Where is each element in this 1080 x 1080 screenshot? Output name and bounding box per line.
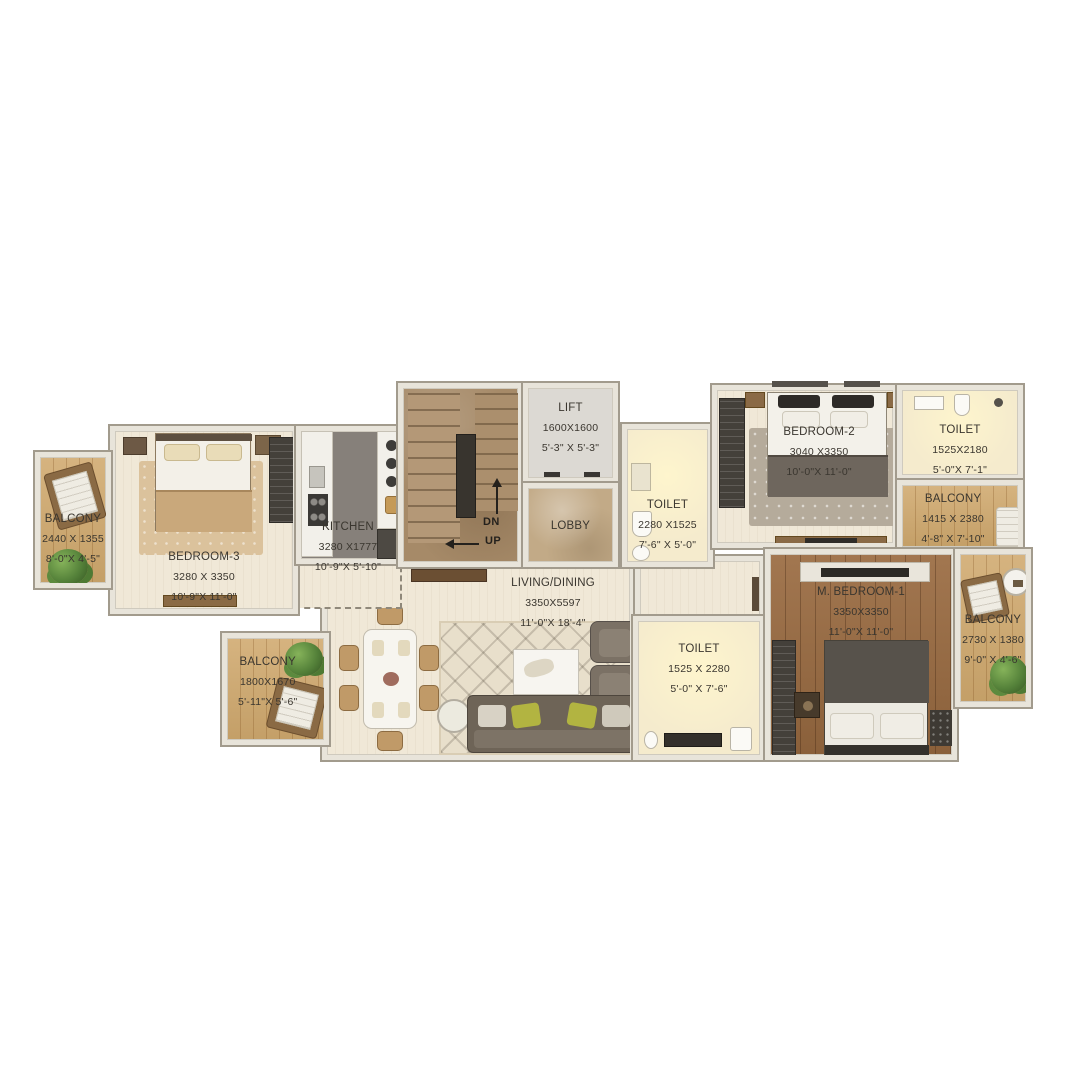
washbasin — [644, 731, 658, 749]
room-name: M. BEDROOM-1 — [817, 582, 905, 603]
stair-railing — [456, 434, 476, 518]
stair-flight-left — [408, 393, 460, 543]
room-dim-mm: 2730 X 1380 — [962, 631, 1024, 650]
bed-pillow — [206, 444, 242, 461]
stairs-dn-label: DN — [483, 516, 500, 528]
bed-headboard — [825, 745, 929, 760]
room-dim-ft: 8'-0"X 4'-5" — [42, 550, 104, 569]
room-label: LIFT 1600X1600 5'-3" X 5'-3" — [542, 398, 599, 458]
sofa-pillow-green — [511, 702, 542, 729]
armchair — [590, 621, 635, 663]
dining-centerpiece — [383, 672, 399, 686]
bed-pillow — [830, 713, 874, 739]
room-balcony-right-upper: BALCONY 1415 X 2380 4'-8" X 7'-10" — [897, 480, 1023, 552]
room-label: TOILET 2280 X1525 7'-6" X 5'-0" — [638, 495, 697, 555]
dining-table — [363, 629, 417, 729]
room-balcony-left: BALCONY 2440 X 1355 8'-0"X 4'-5" — [35, 452, 111, 588]
room-name: KITCHEN — [315, 517, 381, 538]
room-toilet-common: TOILET 2280 X1525 7'-6" X 5'-0" — [622, 424, 713, 567]
room-dim-mm: 1525X2180 — [932, 441, 988, 460]
room-label: TOILET 1525X2180 5'-0"X 7'-1" — [932, 420, 988, 480]
room-label: KITCHEN 3280 X1777 10'-9"X 5'-10" — [315, 517, 381, 577]
stairs-up-arrow-icon — [449, 543, 479, 545]
dining-chair — [419, 685, 439, 711]
bed-pillow-dark — [778, 395, 820, 408]
room-dim-ft: 11'-0"X 11'-0" — [817, 623, 905, 642]
room-lift: LIFT 1600X1600 5'-3" X 5'-3" — [523, 383, 618, 483]
room-dim-ft: 4'-8" X 7'-10" — [921, 530, 984, 549]
room-dim-ft: 10'-0"X 11'-0" — [783, 463, 854, 482]
kitchen-sink — [309, 466, 325, 488]
dining-chair — [339, 685, 359, 711]
room-toilet-2: TOILET 1525X2180 5'-0"X 7'-1" — [897, 385, 1023, 480]
room-balcony-dining: BALCONY 1800X1670 5'-11"X 5'-6" — [222, 633, 329, 745]
room-dim-ft: 9'-0" X 4'-6" — [962, 651, 1024, 670]
room-dim-mm: 3350X5597 — [511, 594, 595, 613]
staircase: DN UP — [398, 383, 523, 567]
room-label: LIVING/DINING 3350X5597 11'-0"X 18'-4" — [511, 573, 595, 633]
place-setting — [398, 702, 410, 718]
shower-head — [994, 398, 1003, 407]
room-dim-ft: 5'-0" X 7'-6" — [668, 680, 730, 699]
sofa-pillow — [602, 705, 630, 727]
dining-chair — [419, 645, 439, 671]
wardrobe — [772, 640, 796, 760]
nightstand — [123, 437, 147, 455]
window — [772, 381, 828, 387]
room-label: BEDROOM-3 3280 X 3350 10'-9"X 11'-0" — [168, 547, 239, 607]
round-table — [1002, 568, 1030, 596]
room-bedroom-2: BEDROOM-2 3040 X3350 10'-0"X 11'-0" — [712, 385, 898, 548]
bed-pillow-dark — [832, 395, 874, 408]
room-dim-ft: 5'-3" X 5'-3" — [542, 439, 599, 458]
room-dim-ft: 5'-11"X 5'-6" — [238, 693, 297, 712]
room-name: BALCONY — [962, 610, 1024, 631]
room-name: LIFT — [542, 398, 599, 419]
room-name: BALCONY — [921, 489, 984, 510]
pot — [386, 440, 397, 451]
room-dim-mm: 3350X3350 — [817, 603, 905, 622]
room-name: TOILET — [932, 420, 988, 441]
nightstand — [794, 692, 820, 718]
tv — [805, 538, 857, 544]
dining-chair — [339, 645, 359, 671]
room-dim-mm: 1800X1670 — [238, 673, 297, 692]
room-label: BEDROOM-2 3040 X3350 10'-0"X 11'-0" — [783, 422, 854, 482]
room-dim-mm: 2280 X1525 — [638, 516, 697, 535]
room-label: BALCONY 2730 X 1380 9'-0" X 4'-6" — [962, 610, 1024, 670]
nightstand-decor — [803, 701, 813, 711]
wc — [954, 394, 970, 416]
stairs-dn-arrow-icon — [496, 482, 498, 514]
balcony-seat — [996, 507, 1020, 547]
room-name: BALCONY — [238, 652, 297, 673]
place-setting — [398, 640, 410, 656]
room-dim-mm: 3280 X1777 — [315, 538, 381, 557]
table-decor — [1013, 580, 1023, 587]
tv-console — [800, 562, 930, 582]
vanity-counter — [664, 733, 722, 747]
washbasin — [914, 396, 944, 410]
sofa-pillow-green — [566, 702, 598, 730]
room-name: BEDROOM-2 — [783, 422, 854, 443]
room-name: LIVING/DINING — [511, 573, 595, 594]
shower-area — [631, 463, 651, 491]
bedroom3-bed — [155, 433, 251, 531]
cutting-board — [385, 496, 399, 514]
room-dim-ft: 7'-6" X 5'-0" — [638, 536, 697, 555]
room-dim-mm: 3280 X 3350 — [168, 568, 239, 587]
nightstand — [745, 392, 765, 408]
room-name: BEDROOM-3 — [168, 547, 239, 568]
room-dim-ft: 10'-9"X 11'-0" — [168, 588, 239, 607]
room-dim-mm: 1415 X 2380 — [921, 510, 984, 529]
wc — [730, 727, 752, 751]
room-kitchen: KITCHEN 3280 X1777 10'-9"X 5'-10" — [296, 426, 400, 564]
wardrobe — [719, 398, 745, 508]
coffee-table — [513, 649, 579, 695]
room-dim-mm: 1525 X 2280 — [668, 660, 730, 679]
room-label: M. BEDROOM-1 3350X3350 11'-0"X 11'-0" — [817, 582, 905, 642]
room-label: BALCONY 2440 X 1355 8'-0"X 4'-5" — [42, 509, 104, 569]
sofa-pillow — [478, 705, 506, 727]
bed-pillow — [164, 444, 200, 461]
pot — [386, 458, 397, 469]
room-balcony-right-lower: BALCONY 2730 X 1380 9'-0" X 4'-6" — [955, 549, 1031, 707]
lift-door-mark — [544, 472, 560, 477]
sofa-seat — [474, 730, 635, 748]
room-dim-mm: 3040 X3350 — [783, 443, 854, 462]
bed-blanket — [156, 490, 252, 532]
room-toilet-3: TOILET 1525 X 2280 5'-0" X 7'-6" — [633, 616, 765, 760]
room-dim-mm: 2440 X 1355 — [42, 530, 104, 549]
dining-chair — [377, 731, 403, 751]
coffee-table-decor — [522, 656, 555, 679]
room-name: TOILET — [668, 639, 730, 660]
room-label: BALCONY 1800X1670 5'-11"X 5'-6" — [238, 652, 297, 712]
bed-blanket — [825, 641, 929, 703]
room-label: TOILET 1525 X 2280 5'-0" X 7'-6" — [668, 639, 730, 699]
room-name: TOILET — [638, 495, 697, 516]
door-leaf — [752, 577, 759, 611]
floor-plan: LIVING/DINING 3350X5597 11'-0"X 18'-4" B… — [0, 0, 1080, 1080]
bed-pillow — [880, 713, 924, 739]
wardrobe — [269, 437, 297, 523]
window — [844, 381, 880, 387]
sofa — [467, 695, 635, 753]
place-setting — [372, 702, 384, 718]
lift-door-mark — [584, 472, 600, 477]
pot — [386, 476, 397, 487]
window — [1019, 412, 1023, 450]
room-lobby: LOBBY — [523, 483, 618, 567]
console-table — [411, 569, 487, 582]
place-setting — [372, 640, 384, 656]
room-dim-mm: 1600X1600 — [542, 419, 599, 438]
room-label: LOBBY — [551, 516, 590, 537]
room-name: BALCONY — [42, 509, 104, 530]
bed-headboard — [156, 434, 252, 441]
room-bedroom-3: BEDROOM-3 3280 X 3350 10'-9"X 11'-0" — [110, 426, 298, 614]
room-dim-ft: 5'-0"X 7'-1" — [932, 461, 988, 480]
master-bed — [824, 640, 928, 760]
room-dim-ft: 11'-0"X 18'-4" — [511, 614, 595, 633]
room-dim-ft: 10'-9"X 5'-10" — [315, 558, 381, 577]
bedside-mat — [930, 710, 956, 746]
stair-flight-right — [475, 393, 521, 511]
room-label: BALCONY 1415 X 2380 4'-8" X 7'-10" — [921, 489, 984, 549]
armchair-cushion — [599, 629, 631, 657]
side-table-left — [437, 699, 471, 733]
room-m-bedroom-1: M. BEDROOM-1 3350X3350 11'-0"X 11'-0" — [765, 549, 957, 760]
stairs-up-label: UP — [485, 535, 501, 547]
room-name: LOBBY — [551, 516, 590, 537]
tv — [821, 568, 909, 577]
